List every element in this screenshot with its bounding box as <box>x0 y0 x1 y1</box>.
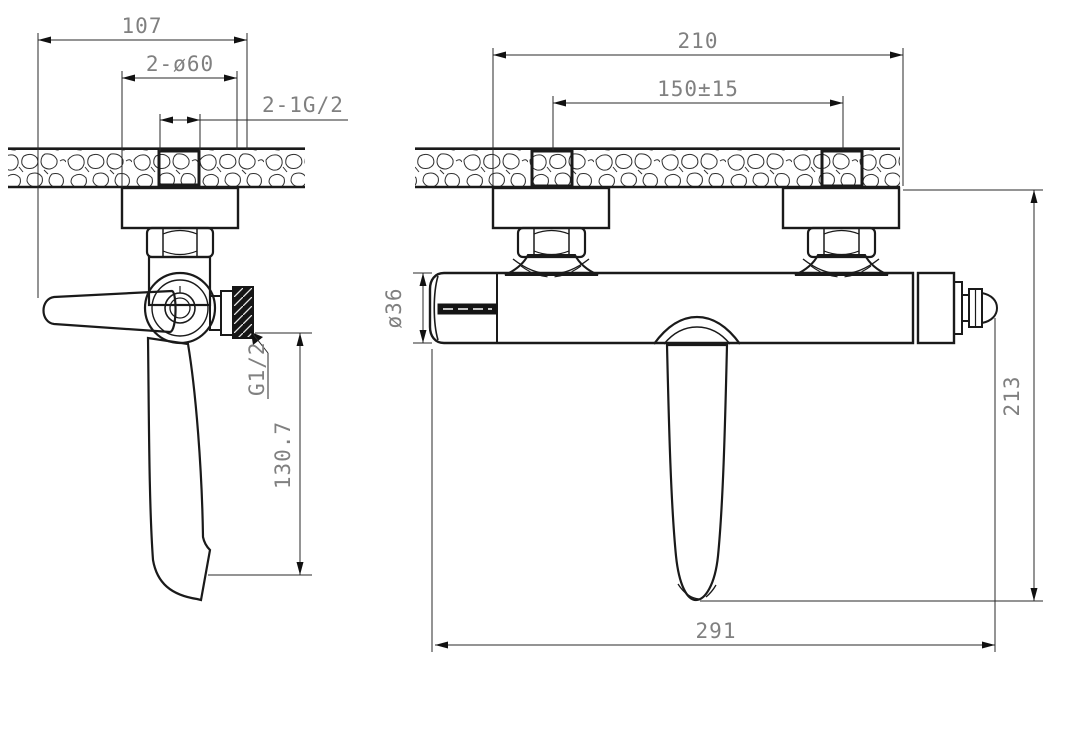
body-slot <box>438 304 497 314</box>
technical-drawing: 107 2-ø60 2-1G/2 G1/2 <box>0 0 1082 749</box>
dim-front-inlet-spacing: 150±15 <box>553 77 843 150</box>
lever-handle-front <box>667 345 727 600</box>
hex-nut-side <box>147 228 213 257</box>
body-cap-curve <box>434 276 438 340</box>
knurled-ring-front <box>918 273 954 343</box>
wall-section-left <box>8 149 305 187</box>
shower-outlet <box>918 273 997 343</box>
escutcheon-flange-cold <box>783 188 899 228</box>
dim-label-2-1g2: 2-1G/2 <box>262 93 344 117</box>
wall-section-front <box>415 149 900 187</box>
dim-label-g12: G1/2 <box>245 341 269 396</box>
dim-front-body-diameter: ø36 <box>382 273 432 343</box>
valve-cap-outer-circle <box>145 273 215 343</box>
outlet-connector-side <box>210 287 253 338</box>
drawing-canvas: 107 2-ø60 2-1G/2 G1/2 <box>0 0 1082 749</box>
front-view: 210 150±15 ø36 213 <box>382 29 1043 652</box>
handle-screw-circle <box>170 298 190 318</box>
dim-label-2-d60: 2-ø60 <box>146 52 214 76</box>
dim-front-height: 213 <box>700 190 1043 601</box>
dim-label-130-7: 130.7 <box>271 421 295 489</box>
lever-handle-side <box>44 291 176 332</box>
side-view: 107 2-ø60 2-1G/2 G1/2 <box>8 14 348 600</box>
dim-label-291: 291 <box>696 619 737 643</box>
escutcheon-flange-side <box>122 188 238 228</box>
escutcheon-flange-hot <box>493 188 609 228</box>
dim-label-210: 210 <box>678 29 719 53</box>
mixer-body <box>430 273 913 343</box>
outlet-step <box>962 295 969 321</box>
outlet-collar <box>954 282 962 334</box>
hex-nut-hot <box>518 228 585 257</box>
dim-label-213: 213 <box>1000 376 1024 417</box>
dim-label-150-15: 150±15 <box>657 77 739 101</box>
lever-boss-inner-arc <box>664 327 730 344</box>
dim-side-inlet-thread: 2-1G/2 <box>160 93 348 151</box>
knurled-ring-side <box>233 287 253 338</box>
dim-label-d36: ø36 <box>382 288 406 329</box>
dim-front-overall-length: 291 <box>432 318 995 652</box>
spout-side <box>148 338 210 600</box>
dim-label-107: 107 <box>122 14 163 38</box>
leader-outlet-thread: G1/2 <box>245 332 269 399</box>
hex-nut-cold <box>808 228 875 257</box>
